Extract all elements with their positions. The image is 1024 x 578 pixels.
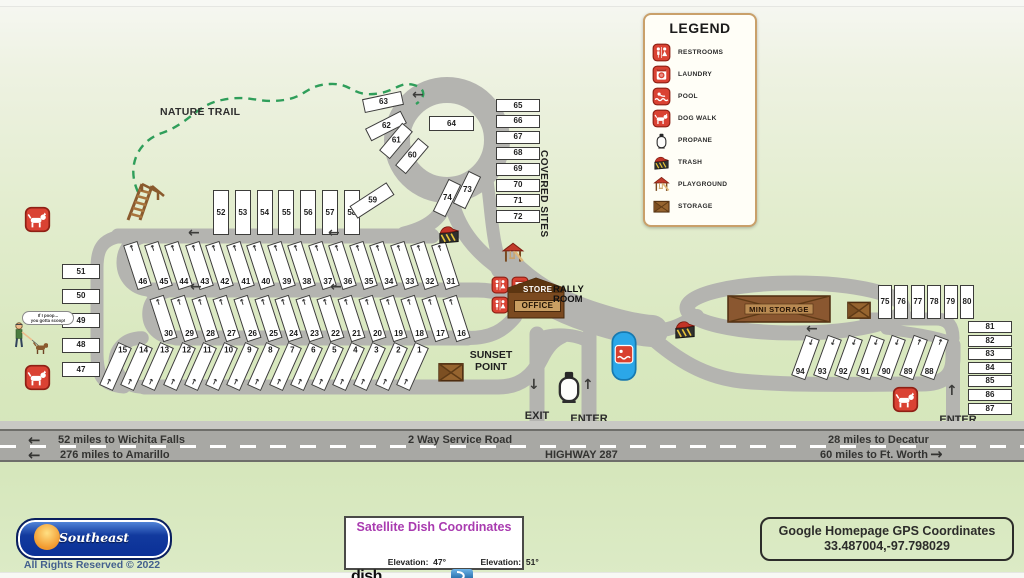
highway-287-label: HIGHWAY 287 <box>545 449 618 461</box>
speech-line2: you gotta scoop! <box>25 318 71 323</box>
decatur-distance: 28 miles to Decatur <box>828 434 929 446</box>
sunset-point-label: SUNSET POINT <box>462 350 520 373</box>
west-arrow-2: ← <box>28 448 41 463</box>
mini-storage-label: MINI STORAGE <box>727 305 831 314</box>
legend-item-playground: PLAYGROUND <box>652 173 748 195</box>
speech-bubble: If I poop... you gotta scoop! <box>22 311 74 325</box>
legend-item-dog-walk: DOG WALK <box>652 107 748 129</box>
mini-storage-building: MINI STORAGE <box>727 295 831 323</box>
legend-item-propane: PROPANE <box>652 129 748 151</box>
legend-item-trash: TRASH <box>652 151 748 173</box>
satellite-coordinates-box: Satellite Dish Coordinates dish NETWORK … <box>344 516 524 570</box>
publisher-name: Southeast Publications <box>18 520 170 560</box>
highway-shoulder <box>0 421 1024 429</box>
legend-item-pool: POOL <box>652 85 748 107</box>
nature-trail-label: NATURE TRAIL <box>160 107 240 119</box>
campground-map: ↑46↑45↑44↑43↑42↑41↑40↑39↑38↑37↑36↑35↑34↑… <box>0 0 1024 578</box>
wichita-falls-distance: 52 miles to Wichita Falls <box>58 434 185 446</box>
storage-icon <box>652 197 671 216</box>
service-road-label: 2 Way Service Road <box>408 434 512 446</box>
east-arrow: → <box>930 447 943 462</box>
bridge-icon <box>112 176 168 222</box>
legend-item-restrooms: RESTROOMS <box>652 41 748 63</box>
covered-sites-label: COVERED SITES <box>538 150 549 240</box>
legend-title: LEGEND <box>652 20 748 36</box>
legend-item-storage: STORAGE <box>652 195 748 217</box>
pool-icon <box>652 87 671 106</box>
gps-values: 33.487004,-97.798029 <box>762 539 1012 554</box>
satellite-box-title: Satellite Dish Coordinates <box>346 520 522 534</box>
propane-icon <box>652 131 671 150</box>
dog-walker-figure <box>6 320 48 356</box>
copyright-text: All Rights Reserved © 2022 <box>16 559 168 571</box>
dish-values: Elevation: 47° Azimuth: 202° <box>388 535 447 578</box>
gps-coordinates-box: Google Homepage GPS Coordinates 33.48700… <box>760 517 1014 561</box>
trash-icon <box>652 153 671 172</box>
dog-walk-icon <box>652 109 671 128</box>
directv-values: Elevation: 51° Azimuth: 182° <box>481 535 540 578</box>
publisher-logo: Southeast Publications <box>16 518 172 560</box>
nature-trail-path <box>133 84 423 192</box>
gps-title: Google Homepage GPS Coordinates <box>762 524 1012 539</box>
playground-icon <box>652 175 671 194</box>
highway-band: ← 52 miles to Wichita Falls 2 Way Servic… <box>0 429 1024 462</box>
dish-network-logo: dish NETWORK <box>351 570 383 578</box>
restrooms-icon <box>652 43 671 62</box>
ft-worth-distance: 60 miles to Ft. Worth <box>820 449 928 461</box>
legend-item-laundry: LAUNDRY <box>652 63 748 85</box>
laundry-icon <box>652 65 671 84</box>
legend-box: LEGEND RESTROOMS LAUNDRY POOL DOG WALK P… <box>643 13 757 227</box>
directv-logo: DIRECTV <box>451 569 475 578</box>
amarillo-distance: 276 miles to Amarillo <box>60 449 170 461</box>
rally-room-label: RALLY ROOM <box>553 285 605 306</box>
